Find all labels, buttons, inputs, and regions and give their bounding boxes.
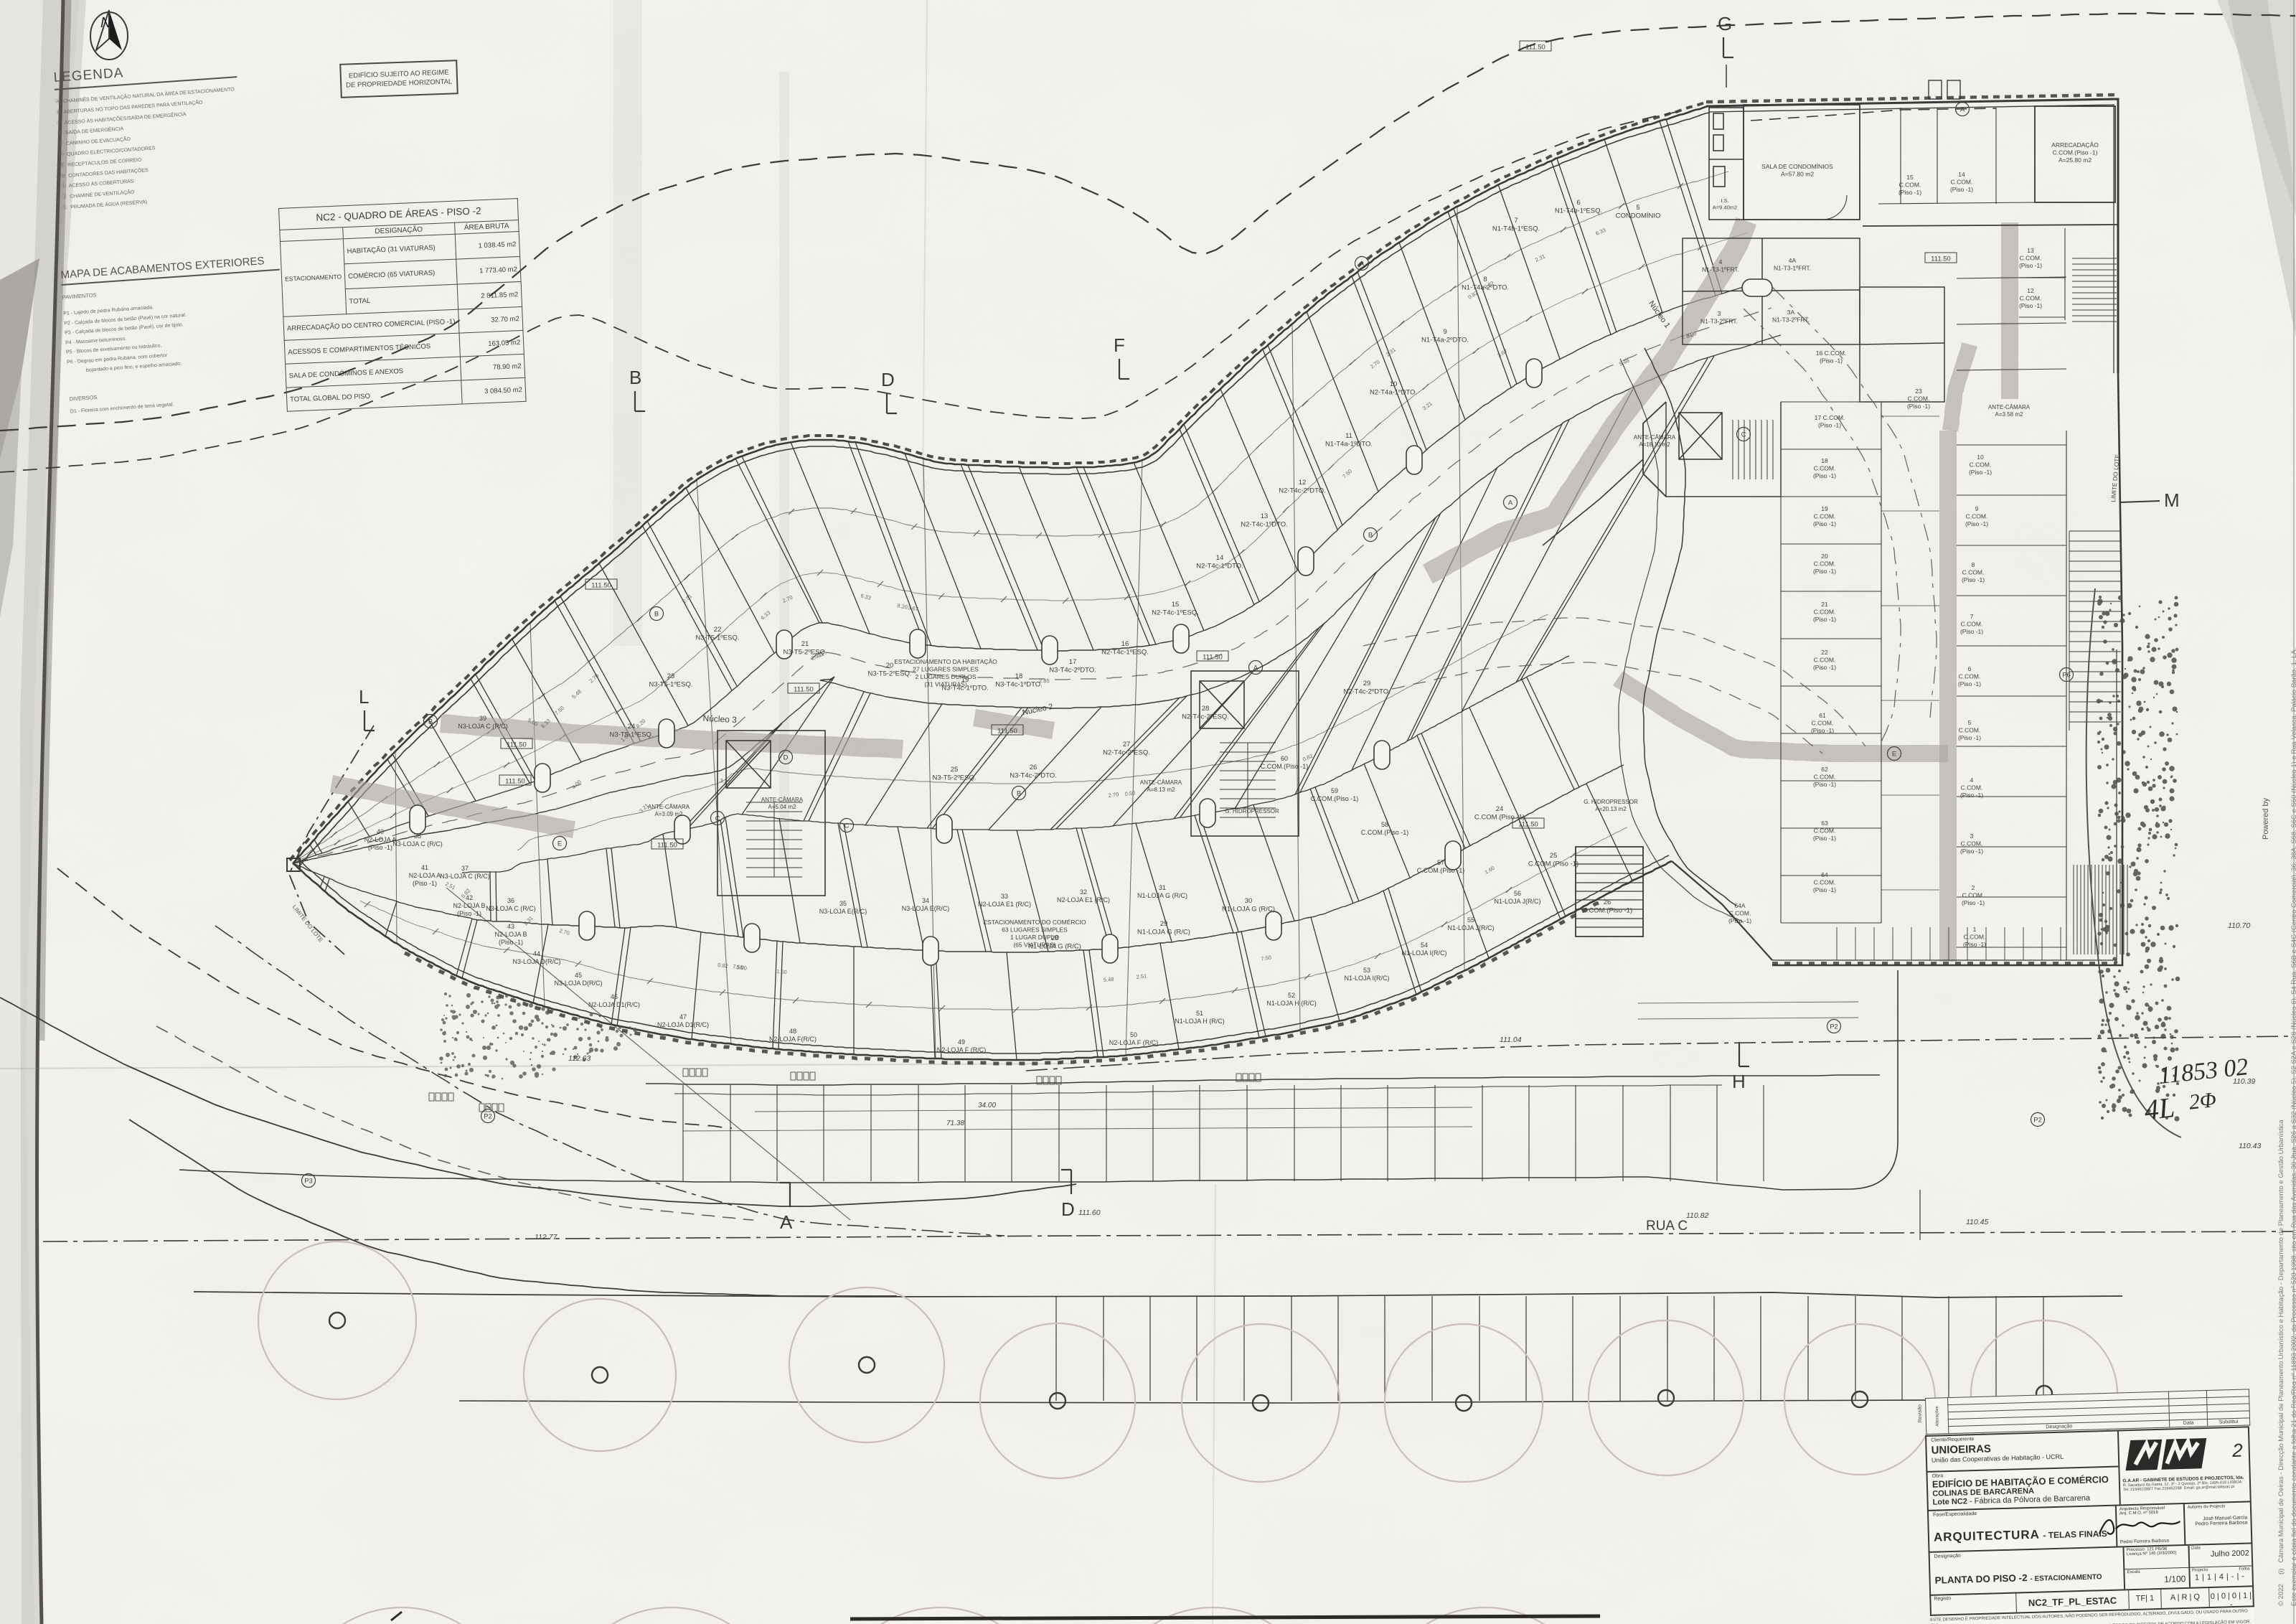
svg-text:17 C.COM.(Piso -1): 17 C.COM.(Piso -1) (1815, 414, 1845, 429)
svg-text:B: B (428, 718, 433, 726)
svg-text:1.60: 1.60 (776, 968, 787, 975)
svg-text:B: B (629, 367, 641, 388)
svg-text:4L: 4L (2142, 1091, 2176, 1126)
svg-text:P2: P2 (484, 1113, 492, 1121)
svg-text:111.04: 111.04 (1500, 1036, 1522, 1044)
svg-text:L: L (359, 686, 369, 708)
svg-text:34.00: 34.00 (978, 1102, 996, 1109)
svg-text:111.50: 111.50 (1931, 255, 1951, 263)
svg-text:111.50: 111.50 (1203, 654, 1223, 662)
svg-text:A: A (1508, 499, 1513, 507)
svg-text:A: A (780, 1211, 793, 1233)
svg-text:E: E (1892, 751, 1896, 759)
svg-text:H: H (1732, 1071, 1746, 1092)
svg-text:2Φ: 2Φ (2188, 1088, 2217, 1114)
svg-text:111.60: 111.60 (1078, 1208, 1101, 1217)
svg-text:111.50: 111.50 (591, 582, 611, 590)
svg-text:G: G (1718, 13, 1732, 34)
svg-text:112.77: 112.77 (535, 1233, 557, 1242)
svg-text:D: D (784, 754, 789, 762)
svg-text:P2: P2 (2033, 1117, 2042, 1125)
svg-text:111.50: 111.50 (1518, 821, 1538, 829)
svg-text:111.50: 111.50 (794, 686, 814, 694)
svg-text:Núcleo 3: Núcleo 3 (702, 713, 737, 725)
svg-text:E: E (557, 840, 562, 848)
svg-text:M: M (2164, 489, 2180, 511)
svg-text:A: A (1360, 261, 1365, 268)
svg-text:F: F (1114, 334, 1125, 356)
svg-text:5.00: 5.00 (736, 964, 748, 972)
svg-text:B: B (1368, 532, 1373, 540)
svg-text:16 C.COM.(Piso -1): 16 C.COM.(Piso -1) (1816, 349, 1847, 365)
svg-text:112.63: 112.63 (568, 1054, 591, 1063)
svg-text:2.51: 2.51 (1136, 972, 1147, 980)
svg-text:N: N (100, 15, 111, 31)
svg-text:ANTE-CÂMARAA=18.10 m2: ANTE-CÂMARAA=18.10 m2 (1634, 434, 1676, 448)
svg-text:111.50: 111.50 (1525, 44, 1545, 52)
svg-text:C: C (1741, 431, 1746, 439)
svg-text:P3: P3 (304, 1178, 313, 1186)
svg-text:RUA C: RUA C (1646, 1219, 1688, 1234)
svg-text:110.82: 110.82 (1686, 1211, 1708, 1220)
svg-text:G. HIDROPRESSOR: G. HIDROPRESSOR (1225, 808, 1279, 815)
svg-text:110.45: 110.45 (1966, 1218, 1988, 1226)
svg-text:110.70: 110.70 (2228, 921, 2250, 930)
svg-text:P2: P2 (1830, 1023, 1838, 1031)
svg-text:B: B (1017, 790, 1021, 798)
svg-text:C: C (715, 815, 720, 823)
svg-text:111.50: 111.50 (997, 728, 1017, 736)
svg-text:111.50: 111.50 (505, 778, 525, 786)
svg-text:B: B (654, 611, 659, 619)
svg-text:111.50: 111.50 (657, 842, 677, 850)
svg-text:2.70: 2.70 (1108, 791, 1119, 799)
svg-text:D: D (881, 369, 895, 390)
svg-text:111.50: 111.50 (507, 741, 527, 749)
svg-text:A: A (1960, 106, 1965, 114)
svg-text:C: C (844, 822, 850, 830)
svg-text:5.48: 5.48 (1104, 976, 1114, 983)
svg-text:71.38: 71.38 (946, 1120, 964, 1127)
svg-text:0.50: 0.50 (1124, 789, 1136, 797)
svg-text:A: A (1253, 665, 1258, 672)
svg-text:P6: P6 (2062, 672, 2071, 680)
svg-text:110.43: 110.43 (2239, 1142, 2261, 1150)
svg-text:2.85: 2.85 (1039, 677, 1050, 684)
svg-text:0.82: 0.82 (717, 962, 729, 970)
svg-text:D: D (1061, 1198, 1075, 1220)
